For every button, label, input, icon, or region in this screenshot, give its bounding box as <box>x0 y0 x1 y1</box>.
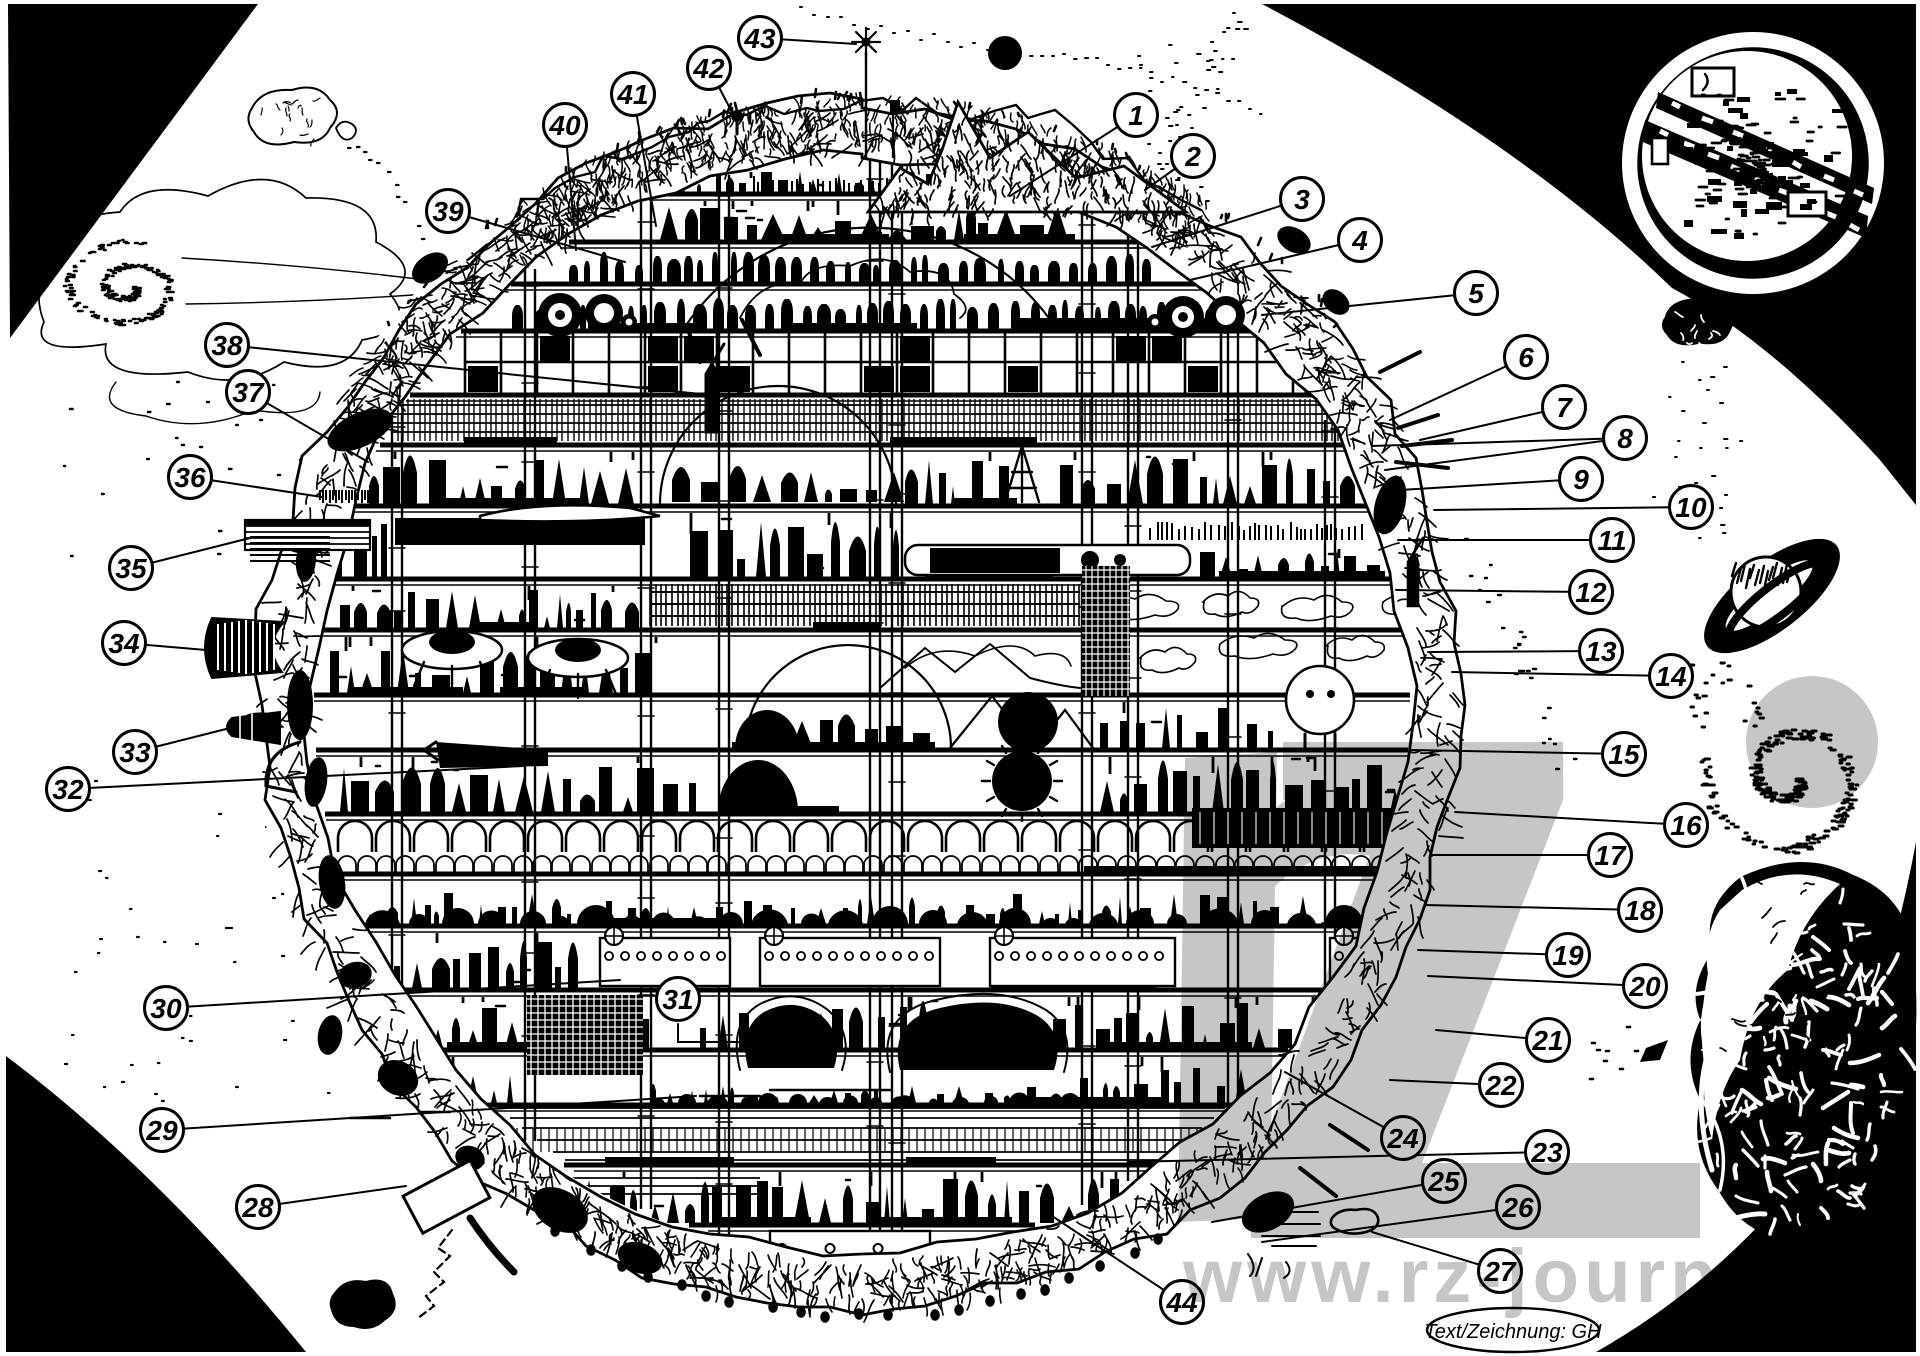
svg-text:42: 42 <box>692 53 725 84</box>
svg-text:14: 14 <box>1655 661 1687 692</box>
svg-text:6: 6 <box>1518 342 1534 373</box>
svg-text:43: 43 <box>743 23 776 54</box>
svg-text:28: 28 <box>241 1192 274 1223</box>
svg-text:17: 17 <box>1594 840 1627 871</box>
svg-text:40: 40 <box>548 110 581 141</box>
svg-text:11: 11 <box>1597 525 1626 556</box>
svg-text:16: 16 <box>1670 810 1702 841</box>
svg-text:32: 32 <box>52 774 84 805</box>
svg-text:13: 13 <box>1585 636 1617 667</box>
svg-text:21: 21 <box>1531 1025 1563 1056</box>
svg-text:10: 10 <box>1675 492 1707 523</box>
svg-text:41: 41 <box>616 79 648 110</box>
svg-text:22: 22 <box>1484 1070 1517 1101</box>
svg-text:35: 35 <box>115 553 147 584</box>
svg-text:3: 3 <box>1294 184 1310 215</box>
svg-text:29: 29 <box>145 1115 178 1146</box>
svg-text:39: 39 <box>432 196 464 227</box>
svg-text:2: 2 <box>1184 141 1201 172</box>
svg-text:36: 36 <box>174 462 206 493</box>
svg-text:30: 30 <box>150 993 182 1024</box>
svg-text:34: 34 <box>108 628 140 659</box>
svg-text:18: 18 <box>1624 895 1656 926</box>
svg-text:1: 1 <box>1128 100 1144 131</box>
svg-text:Text/Zeichnung: GH: Text/Zeichnung: GH <box>1424 1321 1602 1343</box>
svg-text:33: 33 <box>119 737 151 768</box>
svg-text:7: 7 <box>1556 392 1573 423</box>
svg-text:5: 5 <box>1468 278 1484 309</box>
svg-text:9: 9 <box>1573 464 1589 495</box>
svg-text:19: 19 <box>1552 940 1584 971</box>
svg-text:37: 37 <box>232 377 265 408</box>
svg-text:4: 4 <box>1351 225 1368 256</box>
svg-text:20: 20 <box>1628 971 1661 1002</box>
svg-text:31: 31 <box>662 984 693 1015</box>
svg-text:www.rz-journal.de: www.rz-journal.de <box>1182 1234 1920 1319</box>
svg-text:8: 8 <box>1617 423 1633 454</box>
svg-text:15: 15 <box>1608 739 1640 770</box>
svg-text:12: 12 <box>1575 577 1607 608</box>
svg-text:38: 38 <box>211 330 243 361</box>
